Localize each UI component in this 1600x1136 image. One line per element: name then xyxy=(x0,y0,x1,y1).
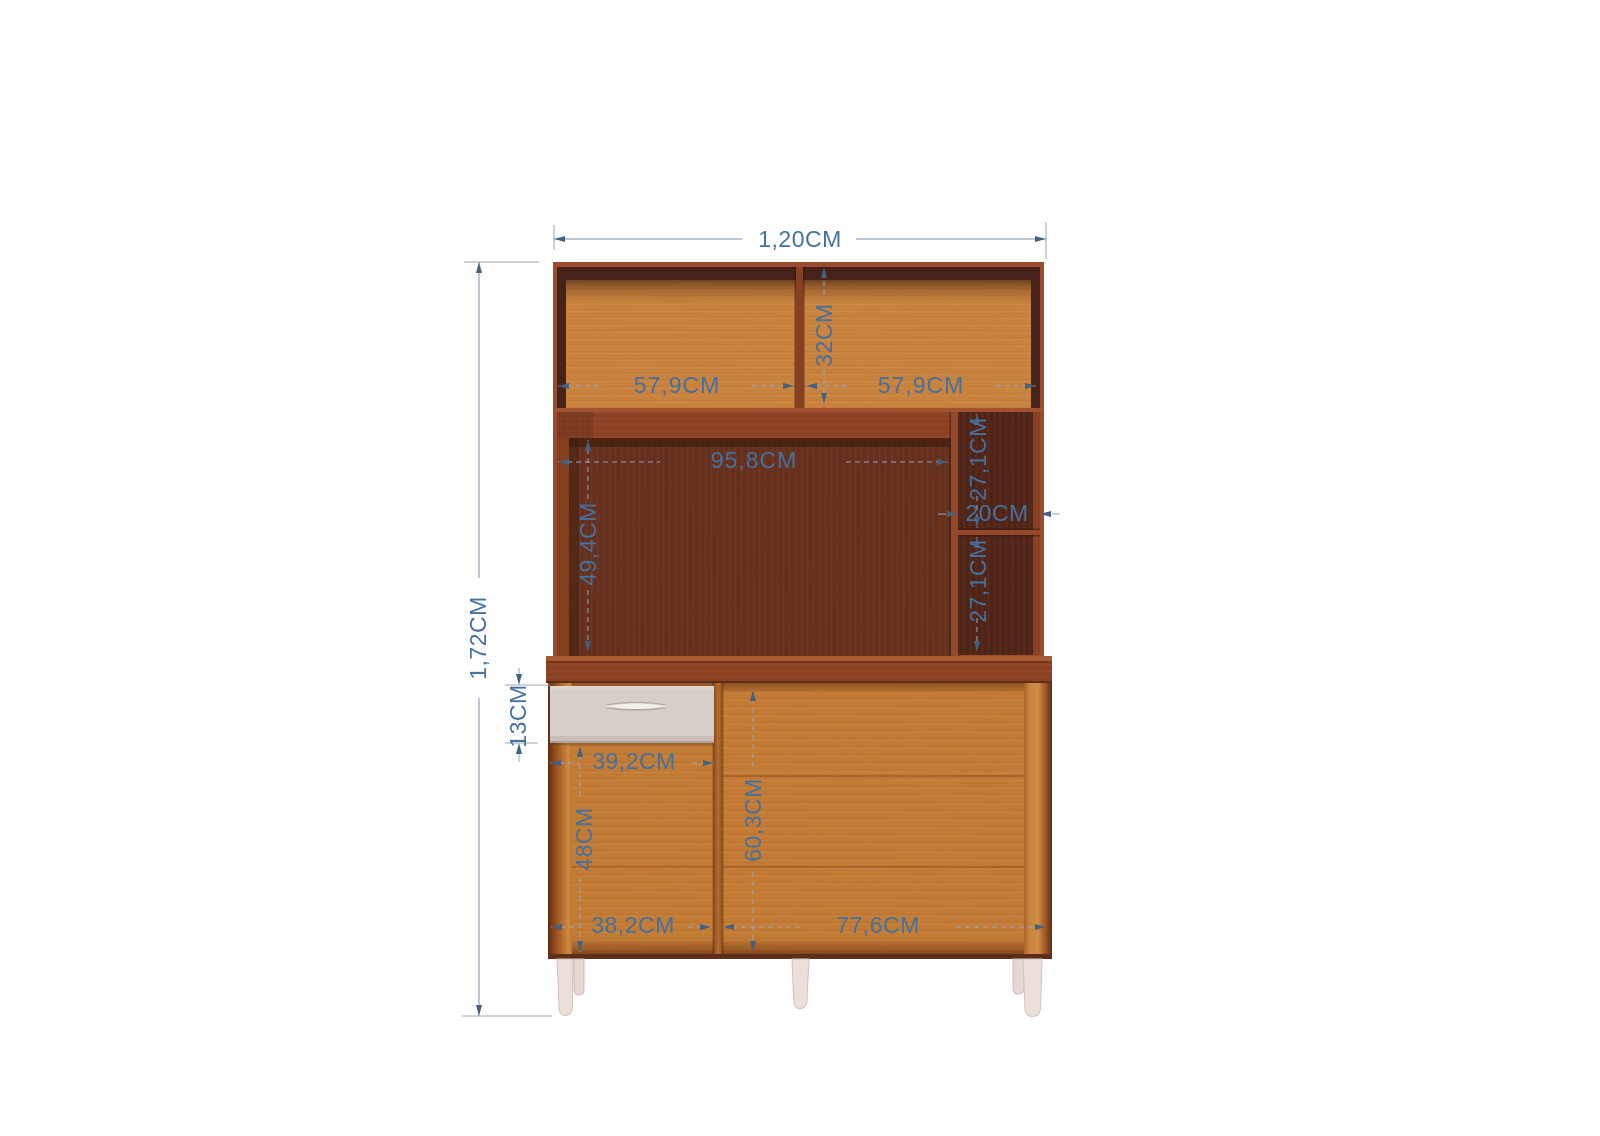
svg-text:20CM: 20CM xyxy=(965,500,1028,526)
svg-text:13CM: 13CM xyxy=(505,684,531,747)
svg-text:95,8CM: 95,8CM xyxy=(711,447,798,473)
svg-text:49,4CM: 49,4CM xyxy=(575,502,601,586)
svg-text:1,72CM: 1,72CM xyxy=(465,596,491,680)
svg-text:32CM: 32CM xyxy=(811,303,837,366)
svg-text:1,20CM: 1,20CM xyxy=(758,226,842,252)
svg-text:48CM: 48CM xyxy=(571,807,597,870)
svg-text:27,1CM: 27,1CM xyxy=(965,539,991,623)
svg-text:39,2CM: 39,2CM xyxy=(592,748,676,774)
svg-text:57,9CM: 57,9CM xyxy=(878,372,965,398)
svg-text:38,2CM: 38,2CM xyxy=(591,912,675,938)
svg-text:77,6CM: 77,6CM xyxy=(836,912,920,938)
svg-text:60,3CM: 60,3CM xyxy=(740,778,766,862)
svg-text:57,9CM: 57,9CM xyxy=(634,372,721,398)
svg-text:27,1CM: 27,1CM xyxy=(965,417,991,501)
